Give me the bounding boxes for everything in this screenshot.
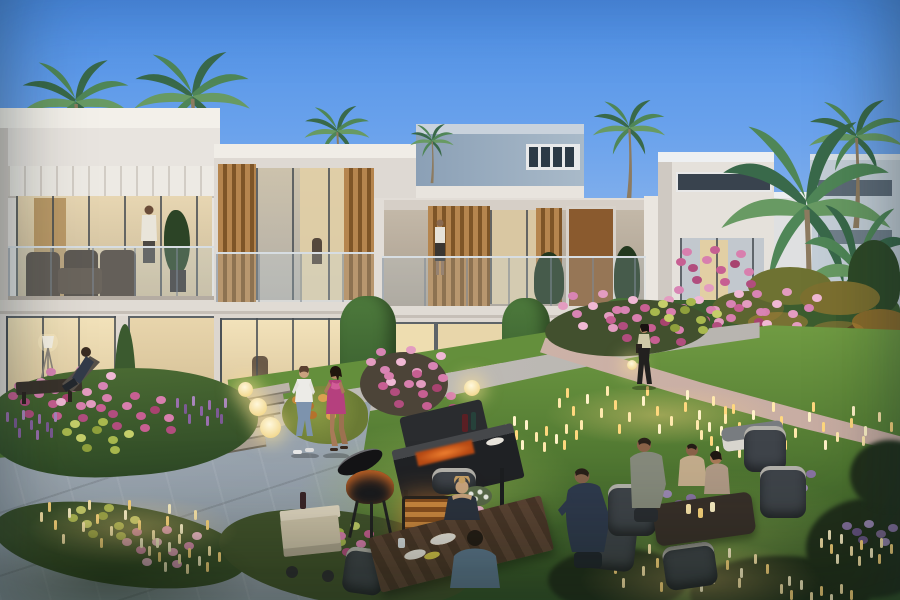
purple-spikes bbox=[176, 398, 179, 408]
candle-lights bbox=[780, 584, 783, 594]
sphere-lamp bbox=[238, 382, 253, 397]
sphere-lamp bbox=[464, 380, 480, 396]
grill-leg bbox=[370, 502, 373, 540]
candle-lights bbox=[724, 414, 727, 424]
bench-leg bbox=[22, 392, 26, 404]
cart-wheel bbox=[286, 566, 298, 578]
person-on-lounger bbox=[56, 336, 110, 398]
wine-bottle bbox=[462, 414, 468, 432]
cup bbox=[398, 538, 405, 548]
flower-cluster bbox=[62, 428, 72, 436]
sphere-lamp bbox=[249, 398, 267, 416]
candle-lights bbox=[700, 430, 703, 440]
flower-cluster bbox=[650, 308, 660, 316]
floor-slab bbox=[0, 300, 220, 314]
bottle-on-cart bbox=[300, 492, 306, 509]
purple-spikes bbox=[6, 412, 9, 422]
serving-cart bbox=[280, 515, 341, 557]
walking-woman bbox=[628, 324, 662, 390]
parapet bbox=[0, 108, 220, 130]
flower-cluster bbox=[606, 316, 616, 324]
cart-wheel bbox=[322, 570, 334, 582]
seated-man-left bbox=[620, 436, 672, 528]
lavender-cluster bbox=[842, 522, 852, 530]
flower-cluster bbox=[676, 258, 686, 266]
seated-man-back bbox=[446, 526, 504, 600]
walking-couple bbox=[288, 366, 358, 458]
corner-shadow bbox=[0, 520, 260, 600]
flower-cluster bbox=[378, 382, 388, 390]
wicker-chair bbox=[661, 541, 719, 592]
architectural-render-scene bbox=[0, 0, 900, 600]
flower-cluster bbox=[742, 300, 752, 308]
pergola-canopy bbox=[8, 166, 218, 198]
glass-balustrade bbox=[8, 246, 218, 300]
clerestory-panes bbox=[529, 147, 577, 167]
wine-bottle bbox=[471, 412, 476, 430]
kettle-grill bbox=[346, 470, 394, 504]
candle-lights bbox=[558, 398, 561, 408]
palm-tree bbox=[406, 124, 458, 184]
flower-cluster bbox=[558, 302, 568, 310]
seated-couple bbox=[672, 442, 736, 514]
wicker-chair bbox=[760, 466, 806, 518]
sphere-lamp bbox=[260, 417, 281, 438]
flower-cluster bbox=[366, 358, 376, 366]
flower-cluster bbox=[96, 404, 106, 412]
candle-lights bbox=[820, 538, 823, 548]
